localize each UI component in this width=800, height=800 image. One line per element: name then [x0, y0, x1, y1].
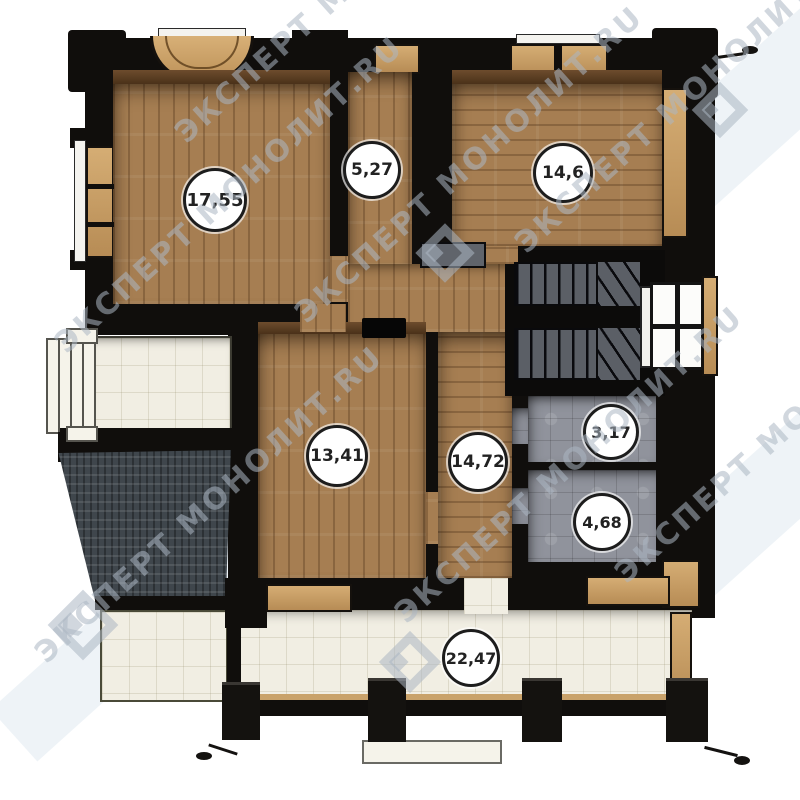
- bathroom-bottom-window: [586, 576, 670, 606]
- room-14-6-outer-sill: [516, 34, 600, 44]
- room-area-label: 5,27: [351, 160, 393, 180]
- stair-winder-lower: [596, 328, 640, 380]
- room-area-label: 14,6: [542, 163, 584, 183]
- left-window-mullion-1: [86, 184, 114, 189]
- entry-steps: [362, 740, 502, 764]
- room-area-label: 17,55: [187, 190, 244, 211]
- railing-band: [222, 700, 704, 716]
- room-area-label: 14,72: [451, 452, 505, 472]
- leader-pin-dot: [742, 46, 758, 54]
- room-area-label: 22,47: [446, 649, 497, 668]
- railing-post: [222, 682, 260, 740]
- room-area-badge: 13,41: [306, 425, 368, 487]
- tv-console: [362, 318, 406, 338]
- room-area-label: 3,17: [591, 423, 630, 442]
- door-opening-bathroom: [512, 488, 528, 524]
- door-opening-wc: [512, 408, 528, 444]
- closet-shelf: [420, 242, 486, 268]
- shingle-roof: [55, 450, 231, 602]
- room-area-label: 4,68: [582, 513, 621, 532]
- room-area-badge: 14,72: [448, 432, 508, 492]
- porch-step-cap-bottom: [66, 426, 98, 442]
- terrace-door-opening: [464, 578, 508, 614]
- railing-post: [522, 678, 562, 742]
- leader-pin-line: [704, 746, 738, 757]
- left-window-mullion-2: [86, 222, 114, 227]
- stair-window: [650, 282, 704, 370]
- leader-pin-line: [208, 743, 237, 755]
- porch-step-line: [82, 340, 84, 432]
- room-14-6-wall-face: [452, 70, 662, 84]
- door-opening-17-55-hallway: [330, 256, 348, 302]
- railing-post: [666, 678, 708, 742]
- room-area-badge: 3,17: [583, 404, 639, 460]
- room-area-label: 13,41: [310, 446, 364, 466]
- room-13-41-bottom-window: [266, 584, 352, 612]
- room-area-badge: 5,27: [343, 141, 401, 199]
- wall-bump-top-middle: [292, 30, 348, 44]
- porch-step-line: [58, 340, 60, 432]
- side-porch-floor: [92, 336, 232, 442]
- bay-window-arc-line: [165, 36, 239, 69]
- leader-pin-line: [716, 52, 746, 59]
- room-area-badge: 17,55: [183, 168, 247, 232]
- left-window-outer-sill: [74, 140, 86, 262]
- room-14-6-right-trim: [662, 88, 688, 238]
- leader-pin-dot: [734, 756, 750, 765]
- stair-window-outer-trim: [702, 276, 718, 376]
- room-area-badge: 22,47: [442, 629, 500, 687]
- stair-winder-upper: [596, 262, 640, 306]
- door-opening-13-41-hall: [426, 492, 438, 544]
- room-area-badge: 4,68: [573, 493, 631, 551]
- railing-post: [368, 678, 406, 742]
- door-opening-17-55-room-13-41: [300, 304, 346, 332]
- room-17-55-wall-face: [113, 70, 330, 84]
- roof-bottom-edge: [95, 596, 233, 610]
- porch-step-cap-top: [66, 328, 98, 344]
- hallway-top-window: [374, 44, 420, 74]
- leader-pin-dot: [196, 752, 212, 760]
- room-area-badge: 14,6: [533, 143, 593, 203]
- floor-plan: 17,55 5,27 14,6 13,41 14,72 3,17 4,68 22…: [0, 0, 800, 800]
- left-window-reveal: [86, 146, 114, 258]
- terrace-left-floor: [100, 610, 228, 702]
- porch-step-line: [70, 340, 72, 432]
